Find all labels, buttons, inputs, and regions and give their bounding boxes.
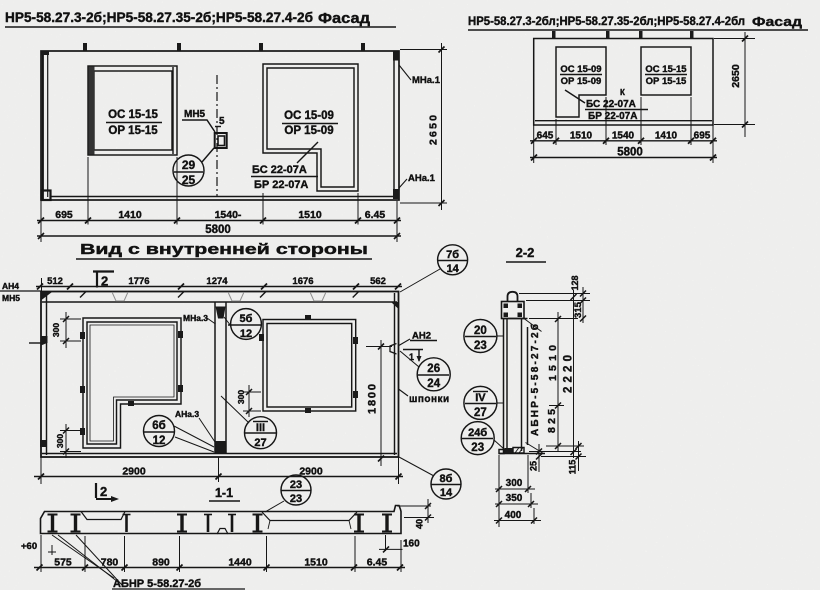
svg-text:Вид с внутренней стороны: Вид с внутренней стороны [80,242,368,258]
svg-text:5: 5 [219,116,225,127]
svg-text:562: 562 [370,276,386,287]
svg-text:МН5: МН5 [2,293,20,303]
svg-text:АН4: АН4 [2,281,19,291]
svg-text:ОР 15-15: ОР 15-15 [108,125,158,137]
svg-text:+60: +60 [21,541,37,552]
svg-text:300: 300 [51,323,61,337]
svg-text:25: 25 [529,461,539,471]
svg-text:5800: 5800 [205,224,231,236]
svg-text:1676: 1676 [292,276,313,287]
svg-text:2900: 2900 [299,466,323,478]
svg-text:20: 20 [474,325,487,337]
svg-text:1776: 1776 [128,276,149,287]
svg-text:645: 645 [537,130,554,141]
svg-text:Фасад: Фасад [318,10,371,27]
svg-text:8б: 8б [440,473,453,485]
svg-text:6.45: 6.45 [365,209,386,221]
svg-text:26: 26 [427,363,440,375]
svg-text:1510: 1510 [570,130,593,141]
svg-text:ОС 15-09: ОС 15-09 [560,64,601,75]
svg-text:1540-: 1540- [215,209,242,221]
svg-text:27: 27 [474,407,487,419]
svg-text:23: 23 [290,479,302,491]
svg-text:2: 2 [100,484,107,499]
svg-text:шпонки: шпонки [409,394,450,405]
svg-text:1-1: 1-1 [215,486,233,500]
svg-text:1540: 1540 [612,130,635,141]
svg-text:1800: 1800 [367,384,379,414]
svg-text:12: 12 [240,328,252,340]
svg-text:ОС 15-15: ОС 15-15 [645,64,687,75]
svg-text:1274: 1274 [206,276,228,287]
svg-text:160: 160 [403,539,420,550]
svg-text:300: 300 [236,390,246,404]
svg-text:23: 23 [290,493,302,505]
svg-text:825: 825 [546,409,558,433]
svg-text:ОР 15-09: ОР 15-09 [284,125,333,137]
svg-text:12: 12 [153,435,166,447]
svg-text:АБНР 5-58.27-2б: АБНР 5-58.27-2б [113,578,201,590]
svg-text:МНа.1: МНа.1 [412,75,441,86]
svg-text:ОР 15-09: ОР 15-09 [561,76,602,87]
svg-text:575: 575 [54,557,72,569]
svg-text:780: 780 [101,557,119,569]
svg-text:БС 22-07А: БС 22-07А [586,99,636,110]
svg-text:III: III [256,422,265,434]
svg-text:ОС 15-15: ОС 15-15 [108,109,158,121]
svg-text:40: 40 [415,519,425,529]
svg-text:АНа.1: АНа.1 [408,173,436,184]
svg-text:350: 350 [506,493,523,504]
svg-text:300: 300 [55,434,65,448]
svg-text:890: 890 [152,557,170,569]
svg-text:БС 22-07А: БС 22-07А [252,164,307,176]
svg-text:695: 695 [55,209,73,221]
svg-text:24б: 24б [468,427,487,439]
svg-text:695: 695 [694,130,711,141]
svg-text:23: 23 [474,340,487,352]
svg-text:512: 512 [47,276,63,287]
svg-text:БР 22-07А: БР 22-07А [588,111,637,122]
svg-text:315: 315 [573,301,584,318]
svg-text:Фасад: Фасад [752,14,803,29]
svg-text:АНа.3: АНа.3 [175,409,199,419]
svg-text:НР5-58.27.3-2бл;НР5-58.27.35-2: НР5-58.27.3-2бл;НР5-58.27.35-2бл;НР5-58.… [468,16,745,28]
svg-text:1440: 1440 [228,557,252,569]
svg-text:5800: 5800 [617,146,643,158]
svg-text:К: К [620,88,625,97]
svg-text:25: 25 [182,173,196,187]
svg-text:1510: 1510 [304,557,328,569]
svg-text:МН5: МН5 [184,109,206,120]
svg-text:24: 24 [427,378,440,390]
svg-text:ОР 15-15: ОР 15-15 [646,76,687,87]
svg-text:МНа.3: МНа.3 [183,313,208,323]
svg-text:29: 29 [182,158,196,172]
svg-text:6б: 6б [152,420,166,432]
svg-text:1510: 1510 [298,209,322,221]
svg-text:5б: 5б [240,313,253,325]
svg-text:400: 400 [505,510,522,521]
svg-text:300: 300 [506,478,523,489]
svg-text:1410: 1410 [655,130,678,141]
svg-text:2650: 2650 [730,64,742,88]
svg-text:14: 14 [446,263,459,275]
svg-text:2: 2 [101,274,108,289]
svg-text:7б: 7б [446,249,459,261]
svg-text:115: 115 [568,460,578,475]
svg-text:14: 14 [440,487,453,499]
svg-text:БР 22-07А: БР 22-07А [254,179,308,191]
svg-text:27: 27 [254,437,266,449]
svg-text:IV: IV [475,392,486,404]
svg-text:2900: 2900 [122,466,146,478]
svg-text:ОС 15-09: ОС 15-09 [284,110,334,122]
svg-text:1410: 1410 [118,209,142,221]
svg-text:23: 23 [471,442,484,454]
svg-text:2-2: 2-2 [516,245,535,260]
svg-text:6.45: 6.45 [367,557,388,569]
svg-text:НР5-58.27.3-2б;НР5-58.27.35-2б: НР5-58.27.3-2б;НР5-58.27.35-2б;НР5-58.27… [5,10,313,25]
svg-text:128: 128 [570,275,580,290]
